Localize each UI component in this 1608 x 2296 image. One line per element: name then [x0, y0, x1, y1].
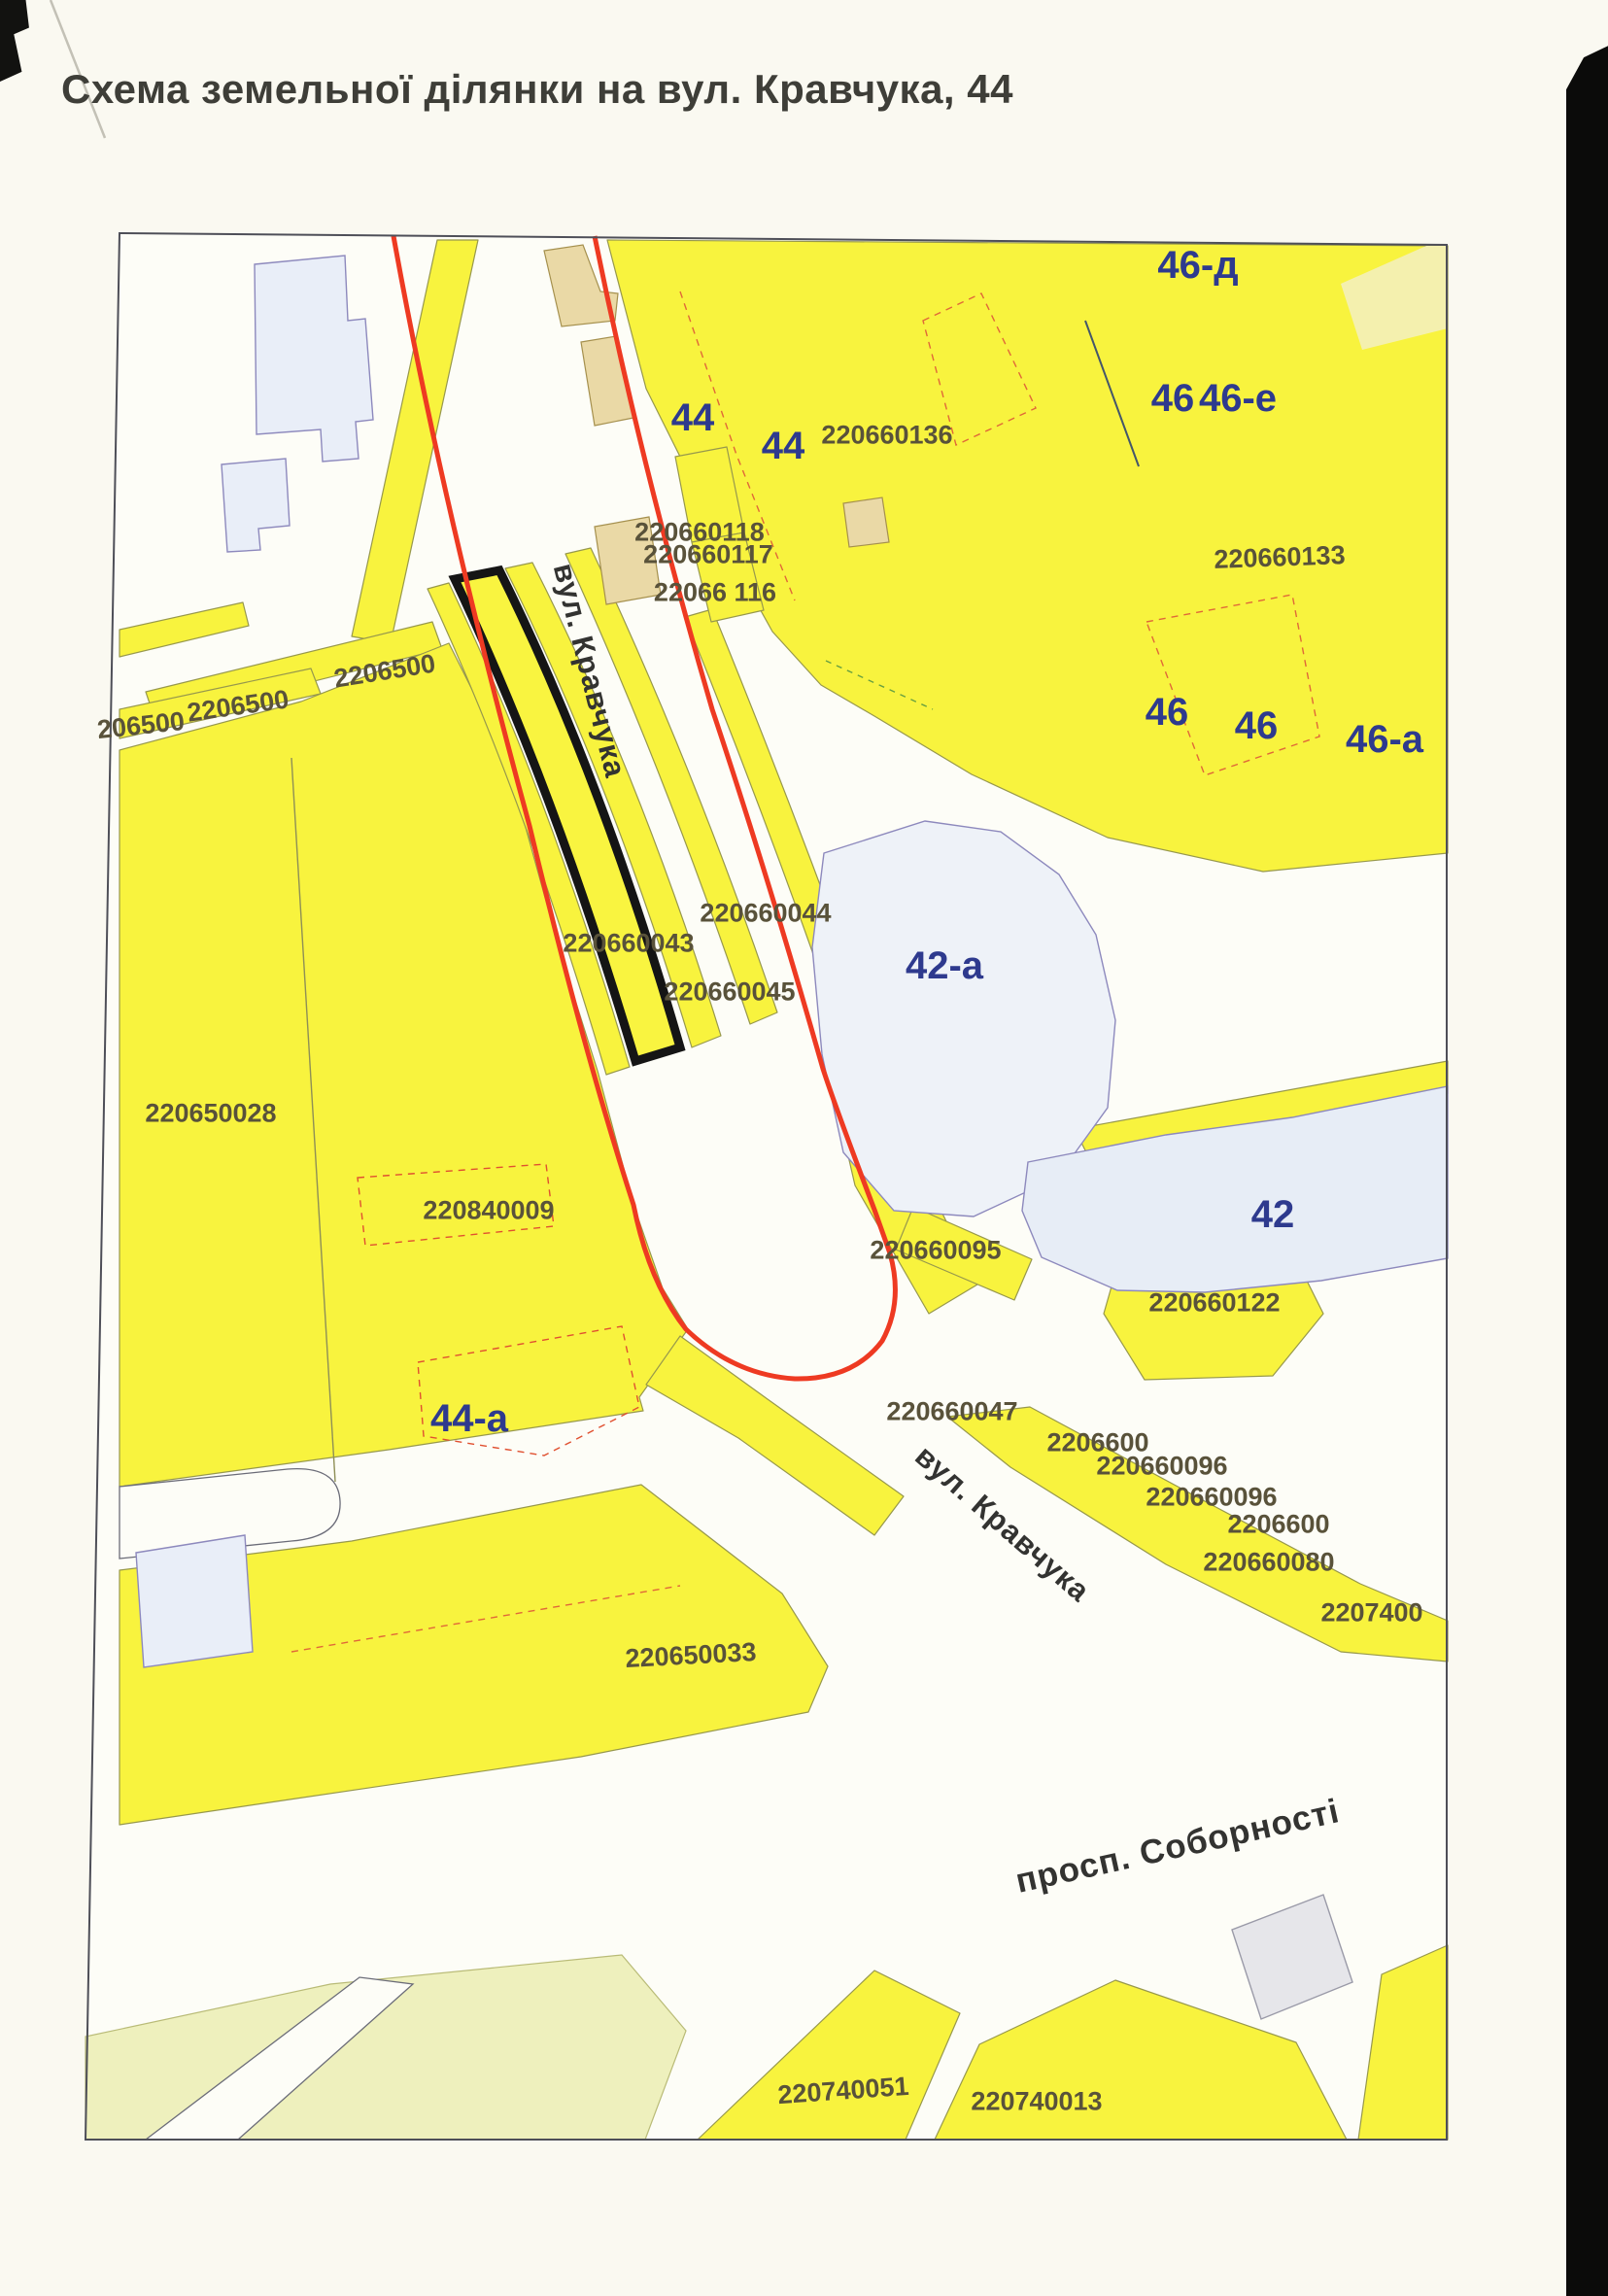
building-number-label: 44	[671, 398, 715, 437]
building-number-label: 46-а	[1346, 720, 1423, 759]
parcel-number-label: 220660117	[643, 542, 773, 568]
building-number-label: 46	[1235, 706, 1279, 745]
building-number-label: 46-д	[1157, 246, 1238, 285]
parcel-number-label: 22066 116	[654, 580, 776, 606]
parcel-number-label: 220660096	[1096, 1454, 1227, 1480]
parcel-number-label: 220650033	[625, 1639, 757, 1672]
building-number-label: 42-а	[906, 946, 983, 985]
parcel-number-label: 220660096	[1146, 1485, 1277, 1511]
parcel-number-label: 2207400	[1320, 1600, 1422, 1627]
building-number-label: 46	[1151, 379, 1195, 418]
parcel-number-label: 220660133	[1214, 542, 1346, 573]
street-name-label: просп. Соборності	[1012, 1794, 1342, 1899]
parcel-number-label: 220740051	[777, 2073, 910, 2108]
parcel-number-label: 220650028	[145, 1101, 276, 1127]
building-number-label: 42	[1251, 1195, 1295, 1234]
scanned-page: Схема земельної ділянки на вул. Кравчука…	[0, 0, 1608, 2296]
parcel-number-label: 220660043	[563, 931, 694, 957]
building-number-label: 44-а	[430, 1399, 508, 1438]
map-label-layer: 46-д4646-е444422066013622066013322066011…	[0, 0, 1608, 2296]
parcel-number-label: 220660095	[870, 1238, 1001, 1264]
building-number-label: 46	[1146, 693, 1189, 732]
parcel-number-label: 2206500	[332, 650, 437, 692]
parcel-number-label: 220660047	[886, 1399, 1017, 1425]
parcel-number-label: 2206600	[1227, 1512, 1329, 1538]
parcel-number-label: 220660044	[700, 901, 831, 927]
street-name-label: вул. Кравчука	[549, 561, 632, 781]
parcel-number-label: 220660122	[1148, 1290, 1280, 1317]
parcel-number-label: 206500	[96, 708, 186, 743]
building-number-label: 46-е	[1199, 379, 1277, 418]
parcel-number-label: 220660136	[821, 423, 952, 449]
street-name-label: вул. Кравчука	[910, 1440, 1096, 1607]
building-number-label: 44	[762, 427, 805, 465]
parcel-number-label: 220840009	[423, 1198, 554, 1224]
parcel-number-label: 2206500	[186, 686, 291, 726]
parcel-number-label: 220740013	[971, 2089, 1102, 2115]
parcel-number-label: 220660080	[1203, 1550, 1334, 1576]
parcel-number-label: 220660045	[664, 979, 795, 1006]
scan-artifact-right-band	[1566, 0, 1608, 2296]
